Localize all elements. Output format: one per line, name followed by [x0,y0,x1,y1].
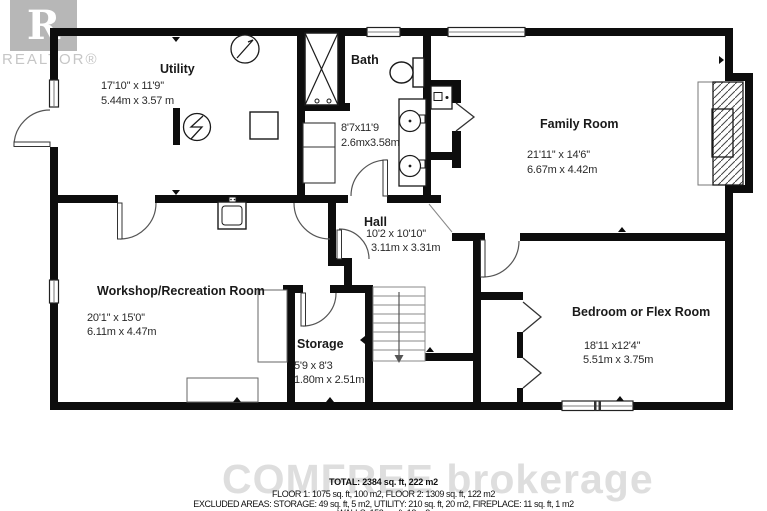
closet-bifold-doors [456,103,541,388]
shower-icon [305,33,338,105]
family-size-ft: 21'11'' x 14'6'' [527,149,590,161]
bedroom-size-m: 5.51m x 3.75m [583,354,653,366]
toilet-icon [390,58,424,87]
bath-size-m: 2.6mx3.58m [341,137,400,149]
hall-size-m: 3.11m x 3.31m [371,242,440,254]
linen-shelves [303,123,335,183]
summary-floors: FLOOR 1: 1075 sq. ft, 100 m2, FLOOR 2: 1… [0,489,767,499]
utility-exterior-door [14,110,50,146]
stairs [373,287,425,363]
workshop-size-ft: 20'1'' x 15'0'' [87,312,145,324]
hall-closet-door [294,203,330,239]
utility-equipment-box [250,112,278,139]
utility-size-ft: 17'10'' x 11'9'' [101,80,164,92]
storage-size-m: 1.80m x 2.51m [294,374,364,386]
bedroom-door [483,241,519,277]
storage-door [303,293,336,326]
bedroom-size-ft: 18'11 x12'4'' [584,340,640,352]
bath-door [351,160,387,196]
hall-family-opening [429,204,452,232]
family-size-m: 6.67m x 4.42m [527,164,597,176]
electrical-panel-bar [173,108,180,145]
hall-size-ft: 10'2 x 10'10'' [366,228,426,240]
bath-room-name: Bath [351,53,379,67]
bedroom-room-name: Bedroom or Flex Room [572,305,710,319]
utility-size-m: 5.44m x 3.57 m [101,95,174,107]
utility-workshop-door [120,203,156,239]
workshop-room-name: Workshop/Recreation Room [97,284,265,298]
bath-size-ft: 8'7x11'9 [341,122,379,134]
family-room-name: Family Room [540,117,619,131]
workshop-closet [258,290,287,362]
storage-size-ft: 5'9 x 8'3 [294,360,332,372]
vanity-sinks [399,99,426,186]
fireplace-icon [698,82,743,185]
cabinet-icon [431,86,452,109]
hall-room-name: Hall [364,215,387,229]
workshop-size-m: 6.11m x 4.47m [87,326,156,338]
storage-room-name: Storage [297,337,344,351]
electrical-panel-icon [184,114,211,141]
utility-room-name: Utility [160,62,195,76]
floorplan-drawing [0,0,767,511]
floorplan-page: R REALTOR® COMFREE brokerage [0,0,767,511]
laundry-sink-icon [218,197,246,229]
ceiling-fixture-icon [231,35,259,63]
workshop-bench [187,378,258,402]
summary-total: TOTAL: 2384 sq. ft, 222 m2 [0,477,767,487]
hall-workshop-door [339,229,369,259]
